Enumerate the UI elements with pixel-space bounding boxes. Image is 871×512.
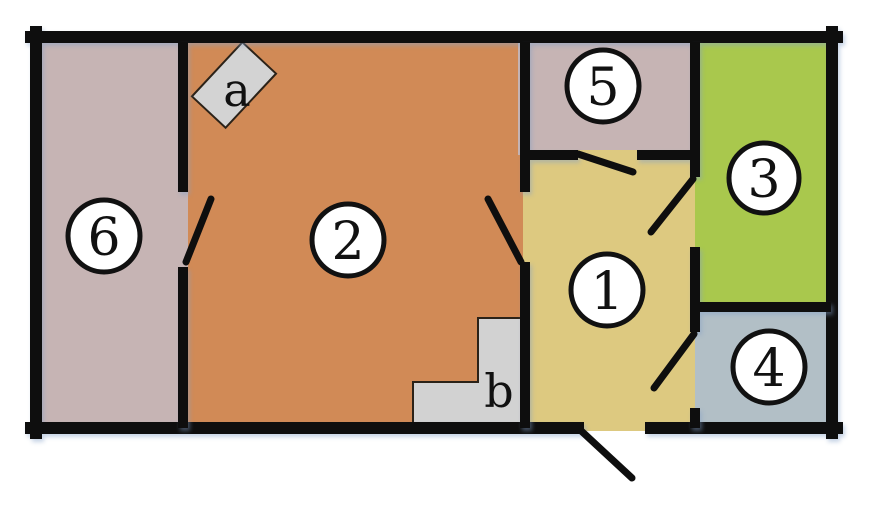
feature-a-label: a (223, 63, 250, 117)
floor-plan-page: 1 2 3 4 5 6 a b (0, 0, 871, 512)
room-4-label: 4 (752, 339, 785, 399)
room-2-badge: 2 (312, 204, 384, 276)
room-2-label: 2 (331, 212, 364, 272)
room-1-label: 1 (590, 262, 623, 322)
room-3-badge: 3 (729, 143, 799, 213)
room-5-badge: 5 (567, 50, 639, 122)
room-6-label: 6 (87, 208, 120, 268)
room-3-label: 3 (747, 150, 780, 210)
room-1-badge: 1 (571, 254, 643, 326)
room-areas (36, 37, 832, 432)
feature-b-label: b (484, 364, 513, 418)
room-6-badge: 6 (68, 200, 140, 272)
room-4-badge: 4 (733, 331, 805, 403)
floor-plan-drawing: 1 2 3 4 5 6 a b (0, 0, 871, 512)
room-5-label: 5 (586, 58, 619, 118)
